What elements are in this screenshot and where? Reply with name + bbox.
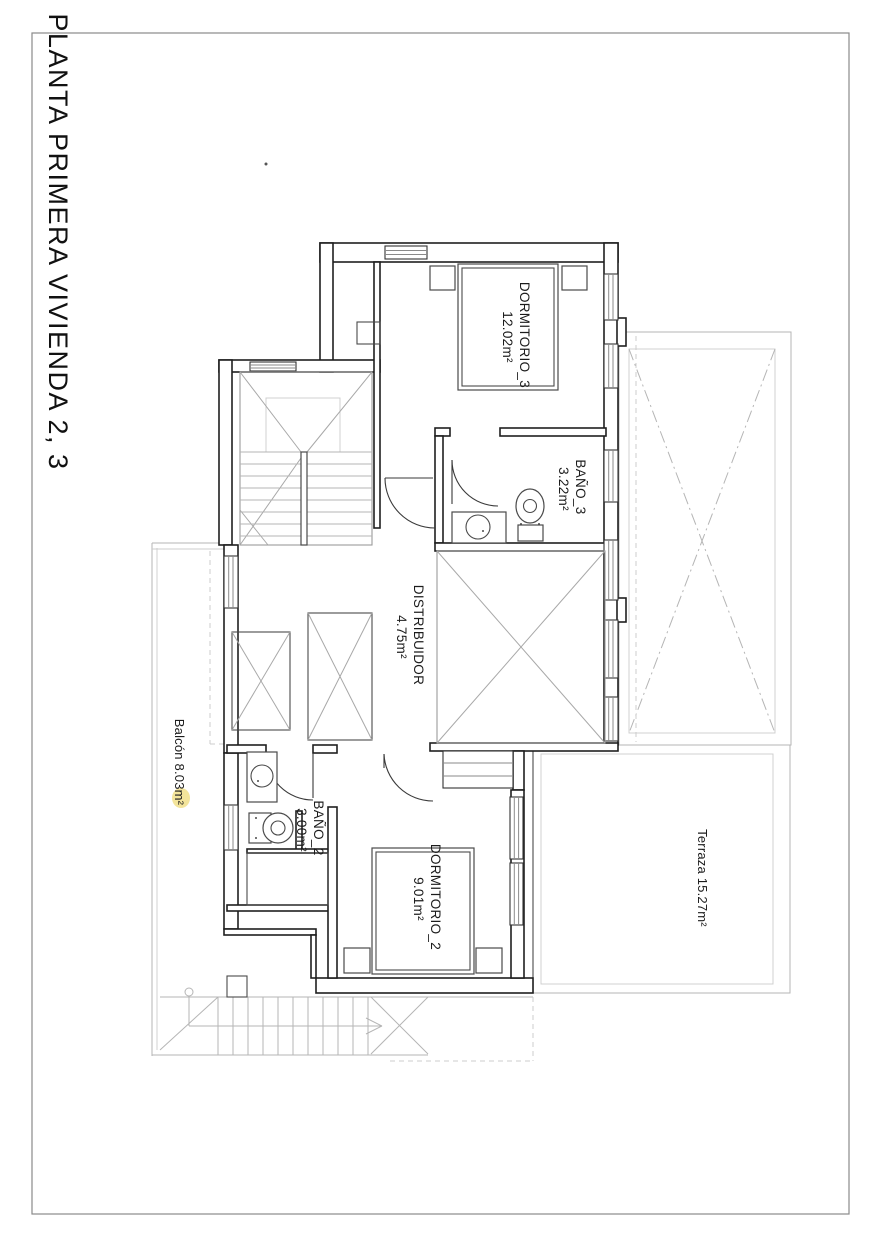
- sink-bano3-icon: [452, 512, 506, 543]
- shower-area: [247, 853, 328, 905]
- window-right-2: [604, 344, 618, 388]
- window-right-4: [604, 540, 618, 600]
- window-bano2: [224, 805, 238, 850]
- distribuidor-void: [437, 551, 605, 743]
- window-right-5: [604, 620, 618, 678]
- nightstand: [344, 948, 370, 973]
- floor-plan-drawing: PLANTA PRIMERA VIVIENDA 2, 3 Terraza 15.…: [0, 0, 878, 1241]
- sink-bano2-icon: [247, 752, 277, 802]
- door-arc-bano3: [452, 460, 498, 506]
- label-bano3: BAÑO_3 3.22m²: [556, 459, 588, 518]
- column: [227, 976, 247, 997]
- window-top: [385, 246, 427, 259]
- toilet-bano3-icon: [516, 489, 544, 541]
- interior-stair: [240, 372, 372, 545]
- window-dorm2-a: [510, 797, 523, 859]
- window-stair: [250, 362, 296, 371]
- nightstand: [476, 948, 502, 973]
- stair-divider: [301, 452, 307, 545]
- roof-void-area: [619, 332, 791, 745]
- wardrobe-2: [308, 613, 372, 740]
- door-arc-dormitorio3: [385, 478, 435, 528]
- toilet-bano2-icon: [249, 813, 293, 843]
- terrace-door: [443, 751, 513, 788]
- window-dorm2-b: [510, 863, 523, 925]
- window-right-1: [604, 274, 618, 320]
- window-right-6: [604, 697, 618, 741]
- exterior-stair: [152, 988, 533, 1061]
- window-right-3: [604, 450, 618, 502]
- terrace-label: Terraza 15.27m²: [695, 829, 710, 927]
- door-arc-dormitorio2: [384, 754, 433, 801]
- terrace-area: Terraza 15.27m²: [533, 745, 790, 993]
- nightstand: [430, 266, 455, 290]
- sheet-border: [32, 33, 849, 1214]
- label-distribuidor: DISTRIBUIDOR 4.75m²: [394, 585, 426, 689]
- print-artifact-dot: [265, 163, 268, 166]
- nightstand: [562, 266, 587, 290]
- plan-sheet: PLANTA PRIMERA VIVIENDA 2, 3 Terraza 15.…: [0, 0, 878, 1241]
- window-balcony-door: [224, 556, 238, 608]
- sheet-title: PLANTA PRIMERA VIVIENDA 2, 3: [43, 13, 73, 470]
- wardrobe-1: [232, 632, 290, 730]
- label-balcon: Balcón 8.03m²: [172, 719, 187, 806]
